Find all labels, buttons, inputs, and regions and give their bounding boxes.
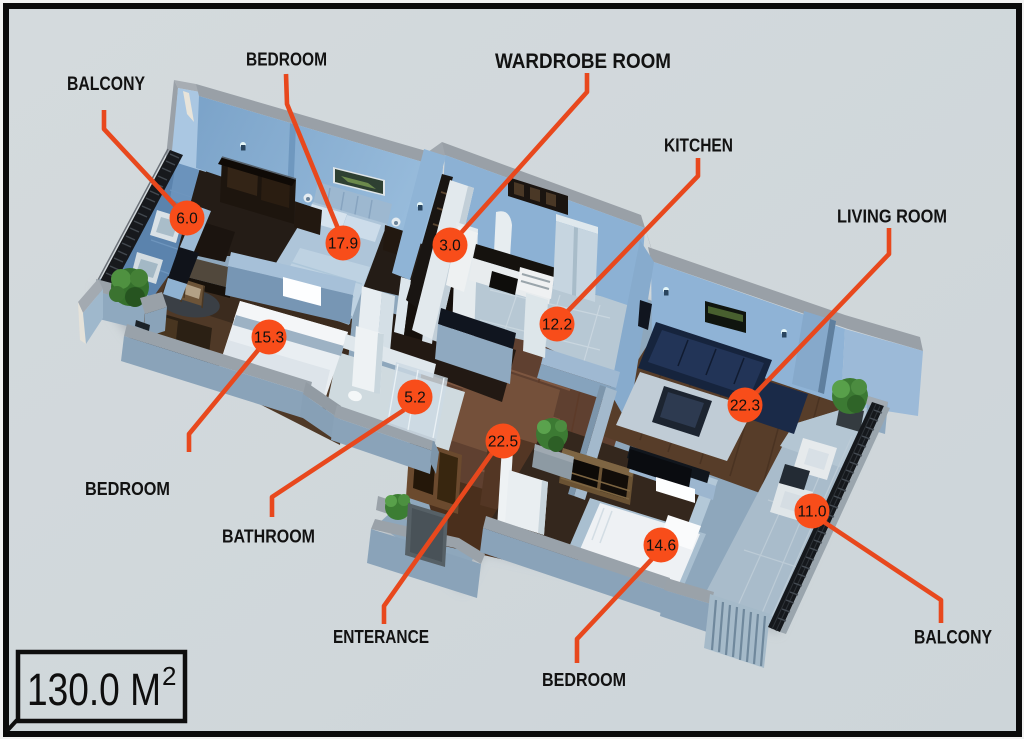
svg-text:BATHROOM: BATHROOM (222, 526, 315, 547)
svg-text:BALCONY: BALCONY (67, 74, 145, 95)
svg-text:22.5: 22.5 (488, 433, 518, 450)
svg-text:12.2: 12.2 (542, 316, 572, 333)
svg-text:15.3: 15.3 (254, 329, 284, 346)
svg-text:6.0: 6.0 (176, 210, 198, 227)
svg-text:ENTERANCE: ENTERANCE (333, 626, 429, 647)
svg-text:14.6: 14.6 (646, 537, 676, 554)
svg-text:LIVING ROOM: LIVING ROOM (837, 206, 947, 227)
svg-text:BEDROOM: BEDROOM (246, 49, 327, 70)
svg-text:BEDROOM: BEDROOM (85, 478, 170, 499)
svg-text:11.0: 11.0 (797, 503, 826, 520)
svg-text:2: 2 (162, 661, 176, 691)
svg-text:BEDROOM: BEDROOM (542, 669, 626, 690)
svg-text:130.0 M: 130.0 M (27, 664, 161, 715)
svg-text:3.0: 3.0 (439, 237, 461, 254)
svg-text:BALCONY: BALCONY (914, 628, 992, 649)
svg-text:22.3: 22.3 (730, 397, 760, 414)
svg-text:17.9: 17.9 (328, 235, 358, 252)
svg-text:WARDROBE ROOM: WARDROBE ROOM (495, 49, 671, 73)
svg-text:KITCHEN: KITCHEN (664, 135, 733, 156)
svg-text:5.2: 5.2 (404, 389, 426, 406)
